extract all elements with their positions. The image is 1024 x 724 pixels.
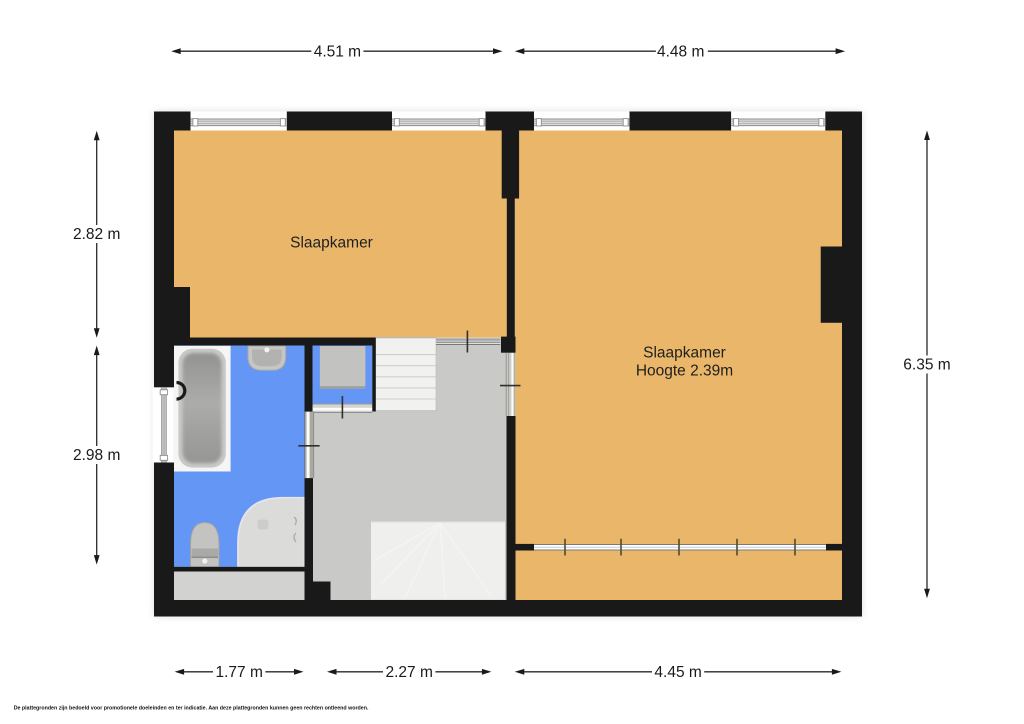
svg-text:6.35 m: 6.35 m — [903, 357, 950, 374]
svg-text:1.77 m: 1.77 m — [216, 664, 263, 681]
svg-text:4.48 m: 4.48 m — [657, 43, 704, 60]
svg-text:2.27 m: 2.27 m — [386, 664, 433, 681]
svg-text:4.45 m: 4.45 m — [654, 664, 701, 681]
svg-text:2.82 m: 2.82 m — [73, 226, 120, 243]
svg-text:Slaapkamer: Slaapkamer — [643, 345, 726, 362]
svg-text:De plattegronden zijn bedoeld: De plattegronden zijn bedoeld voor promo… — [14, 705, 369, 711]
svg-text:Hoogte 2.39m: Hoogte 2.39m — [636, 363, 733, 380]
svg-text:Slaapkamer: Slaapkamer — [290, 235, 373, 252]
svg-text:4.51 m: 4.51 m — [314, 43, 361, 60]
svg-text:2.98 m: 2.98 m — [73, 447, 120, 464]
